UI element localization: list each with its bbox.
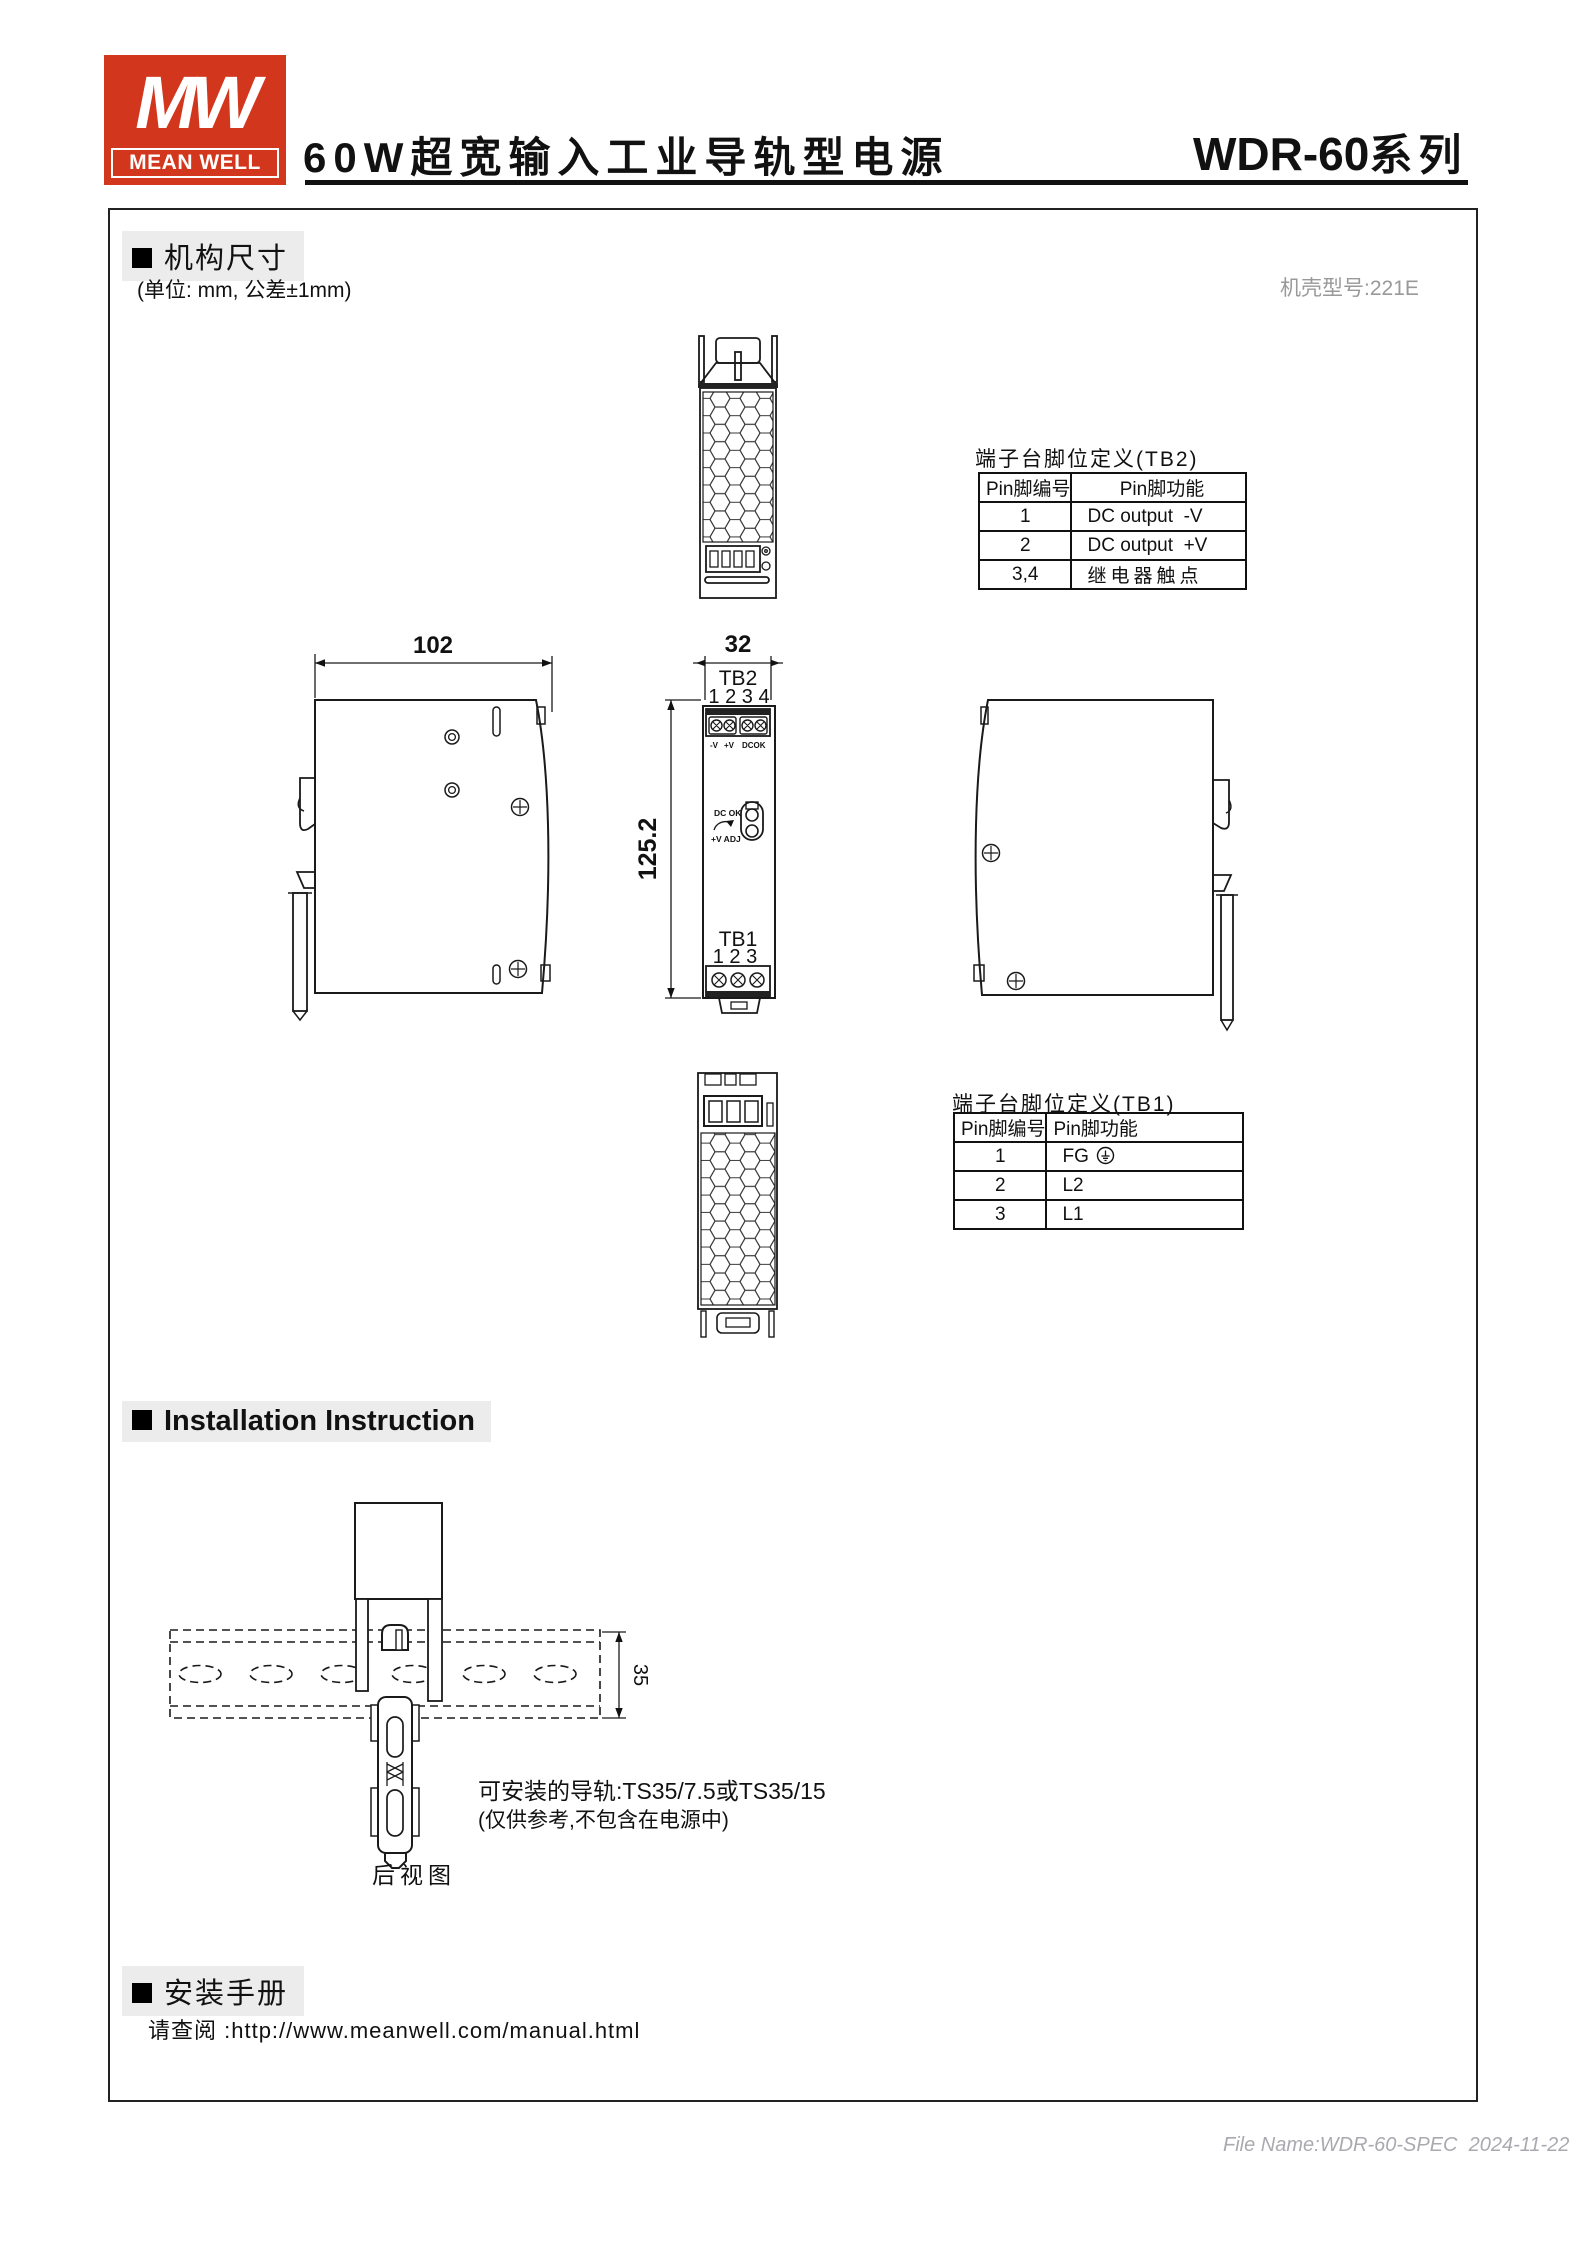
page-title: 60W超宽输入工业导轨型电源 [303,124,949,185]
tb2-pin-1: 1 [979,502,1071,531]
table-row: 3,4 继电器触点 [979,560,1246,589]
section-install-label: Installation Instruction [164,1405,475,1437]
v-adj-label: +V ADJ [711,834,741,844]
right-side-view-drawing [945,650,1250,1045]
tb2-pin-numbers: 1 2 3 4 [708,686,769,708]
square-bullet-icon [132,1410,152,1430]
rail-height-label: 35 [629,1664,651,1686]
case-type-note: 机壳型号:221E [1280,272,1419,302]
tb1-col-pin: Pin脚编号 [954,1113,1046,1142]
tb1-pin-table: Pin脚编号 Pin脚功能 1 FG 2 L2 3 L1 [953,1112,1244,1230]
mark-neg-v: -V [710,741,719,750]
tb2-func-1: DC output -V [1071,502,1246,531]
table-row: 2 L2 [954,1171,1243,1200]
tb1-func-2: L2 [1046,1171,1243,1200]
tb2-col-func: Pin脚功能 [1071,473,1246,502]
tb2-pin-table: Pin脚编号 Pin脚功能 1 DC output -V 2 DC output… [978,472,1247,590]
tb2-col-pin: Pin脚编号 [979,473,1071,502]
mark-dcok: DCOK [742,741,766,750]
top-view-drawing [690,325,790,605]
dim-depth-label: 32 [725,631,752,658]
dc-ok-label: DC OK [714,808,742,818]
meanwell-logo: MW MEAN WELL [104,55,286,185]
tb2-pin-34: 3,4 [979,560,1071,589]
table-row: 1 FG [954,1142,1243,1171]
dim-height-label: 125.2 [634,818,662,881]
installation-drawing: 35 [150,1490,660,1895]
series-title: WDR-60系列 [1193,121,1467,183]
mark-pos-v: +V [724,741,735,750]
tb2-func-2: DC output +V [1071,531,1246,560]
tb2-func-34: 继电器触点 [1071,560,1246,589]
datasheet-page: MW MEAN WELL 60W超宽输入工业导轨型电源 WDR-60系列 机构尺… [0,0,1587,2245]
unit-rear-view [355,1503,442,1868]
tb1-col-func: Pin脚功能 [1046,1113,1243,1142]
front-view-drawing: 32 TB2 1 2 3 4 -V +V DCOK DC OK +V ADJ 1… [635,630,800,1020]
rail-note-sub: (仅供参考,不包含在电源中) [478,1804,729,1834]
section-manual-heading: 安装手册 [122,1966,304,2016]
dim-width-label: 102 [413,632,453,659]
manual-url[interactable]: http://www.meanwell.com/manual.html [231,2018,640,2043]
table-row: 1 DC output -V [979,502,1246,531]
rear-view-caption: 后视图 [372,1856,456,1890]
manual-link-line: 请查阅 :http://www.meanwell.com/manual.html [148,2013,640,2045]
tb1-func-1: FG [1046,1142,1243,1171]
rail-dimension [602,1632,626,1718]
square-bullet-icon [132,1983,152,2003]
tb2-table-title: 端子台脚位定义(TB2) [975,443,1199,473]
table-row: 3 L1 [954,1200,1243,1229]
square-bullet-icon [132,248,152,268]
table-row: 2 DC output +V [979,531,1246,560]
section-mechanical-label: 机构尺寸 [164,243,288,275]
tb2-pin-2: 2 [979,531,1071,560]
tb1-pin-2: 2 [954,1171,1046,1200]
logo-brand-text: MEAN WELL [111,148,279,178]
logo-mw-text: MW [104,57,286,149]
bottom-view-drawing [690,1065,785,1345]
tb1-pin-3: 3 [954,1200,1046,1229]
top-view-bracket-bar [698,383,778,388]
series-suffix: 系列 [1369,132,1467,180]
rail-note: 可安装的导轨:TS35/7.5或TS35/15 [478,1772,826,1806]
file-info-footer: File Name:WDR-60-SPEC 2024-11-22 [1223,2134,1569,2157]
manual-prompt: 请查阅 : [148,2018,231,2043]
unit-note: (单位: mm, 公差±1mm) [137,274,352,304]
tb1-pin-1: 1 [954,1142,1046,1171]
section-install-heading: Installation Instruction [122,1401,491,1442]
series-name: WDR-60 [1193,128,1369,180]
ground-icon [1096,1146,1115,1165]
fg-label: FG [1062,1146,1088,1167]
section-manual-label: 安装手册 [164,1978,288,2010]
header-rule [305,180,1468,185]
tb1-func-3: L1 [1046,1200,1243,1229]
tb1-pin-numbers: 1 2 3 [713,946,757,968]
left-side-view-drawing: 102 [280,630,570,1025]
top-view-outline [699,336,777,598]
